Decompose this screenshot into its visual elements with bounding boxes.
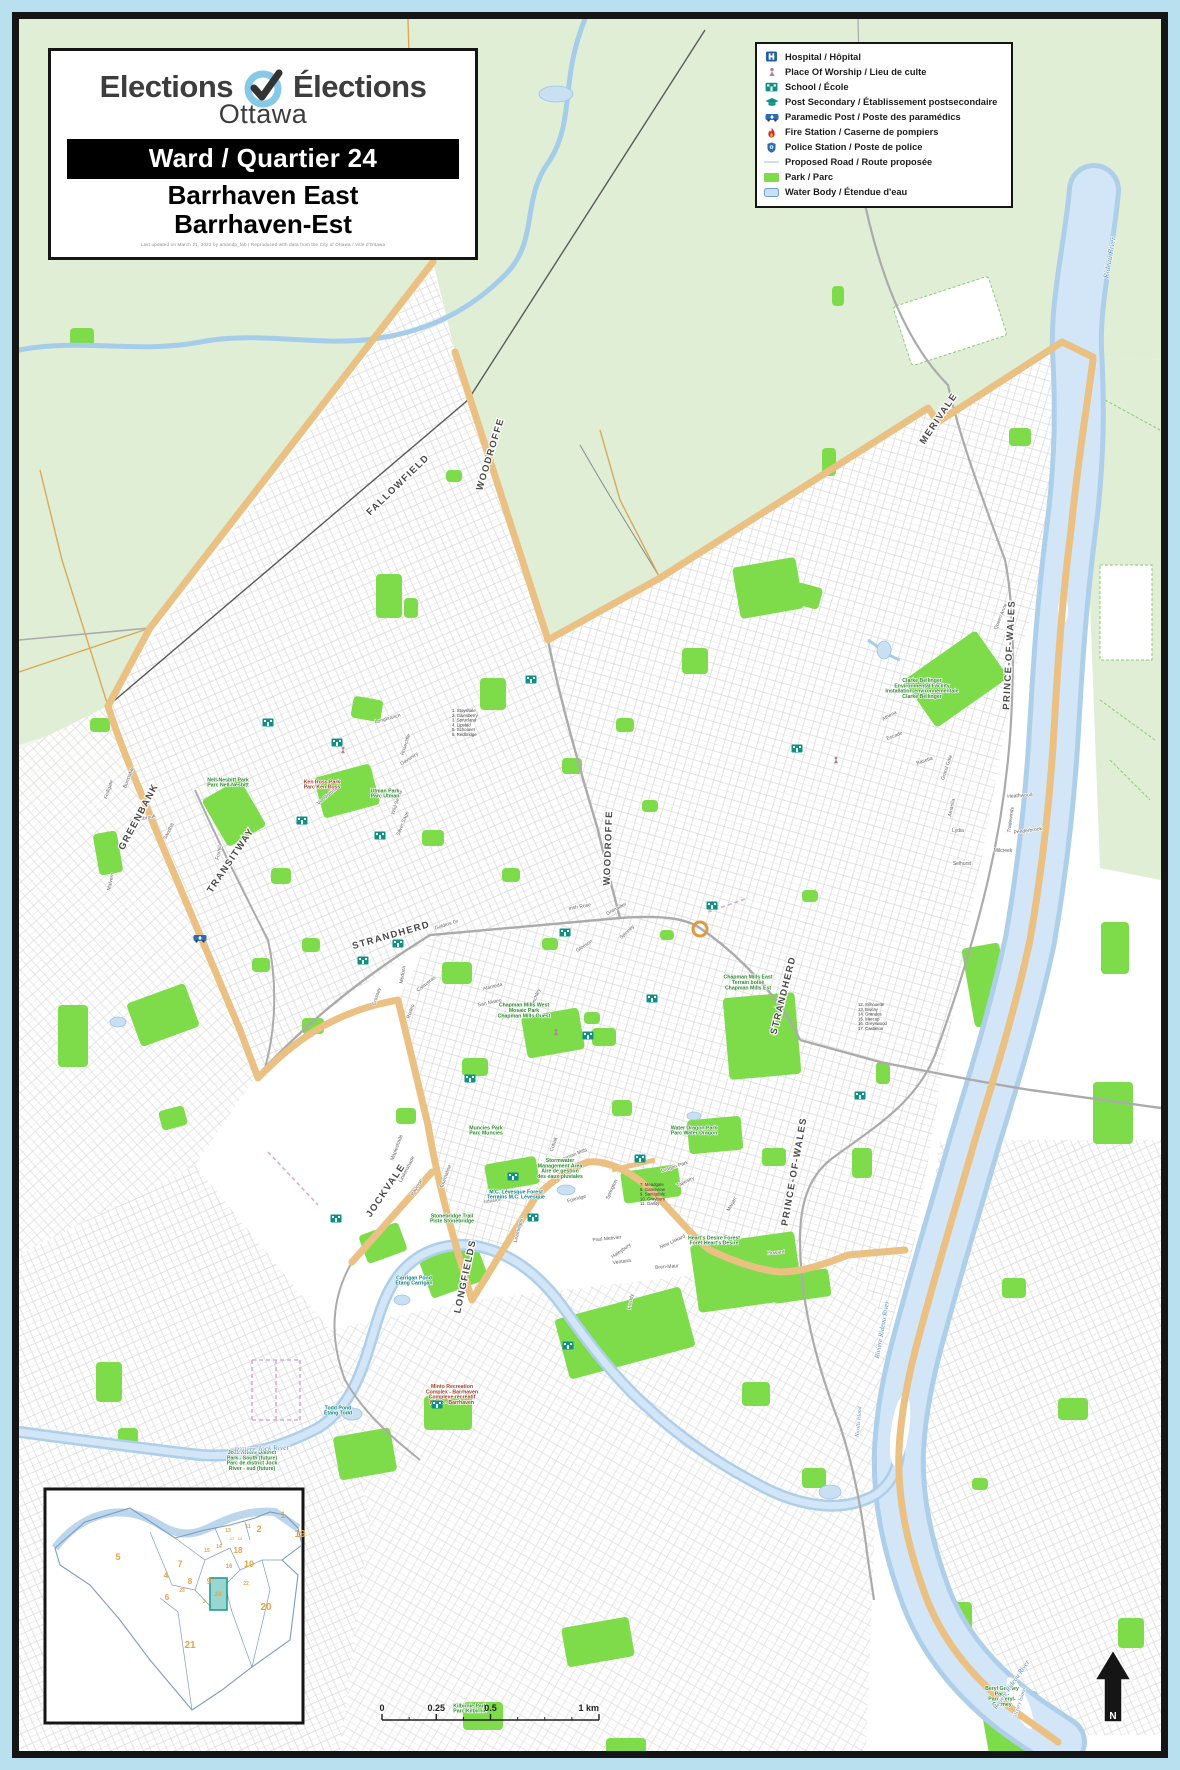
paramedic-icon xyxy=(764,111,779,123)
park-area xyxy=(802,1468,826,1488)
inset-ward-number: 20 xyxy=(260,1602,272,1613)
park-label: Carrigan PondÉtang Carrigan xyxy=(395,1275,432,1286)
park-label: Ken Ross ParkParc Ken Ross xyxy=(304,779,341,790)
school-icon xyxy=(375,832,386,840)
worship-icon xyxy=(764,66,779,78)
park-area xyxy=(876,1062,890,1084)
legend-item-label: Fire Station / Caserne de pompiers xyxy=(785,127,938,137)
inset-ward-number: 11 xyxy=(245,1524,251,1530)
map-attribution: Last updated on March 21, 2022 by amandp… xyxy=(51,242,475,247)
park-area xyxy=(252,958,270,972)
water-icon xyxy=(764,186,779,198)
inset-ward-number: 13 xyxy=(225,1528,231,1534)
scale-bar-label: 1 km xyxy=(578,1703,599,1713)
school-icon xyxy=(647,995,658,1003)
inset-ward-number: 10 xyxy=(244,1559,254,1569)
park-area xyxy=(660,930,674,940)
pond xyxy=(687,1112,701,1120)
scale-bar-label: 0 xyxy=(379,1703,384,1713)
legend-item-label: Paramedic Post / Poste des paramédics xyxy=(785,112,961,122)
police-icon xyxy=(764,141,779,153)
park-area xyxy=(802,890,818,902)
inset-map: 574896231016182119202122241514131112317 xyxy=(45,1489,306,1723)
park-label: Todd PondÉtang Todd xyxy=(324,1405,352,1416)
logo-word-fr: Élections xyxy=(293,69,426,105)
inset-ward-number: 22 xyxy=(243,1581,249,1587)
inset-ward-number: 24 xyxy=(215,1592,222,1598)
park-label: Water Dragon ParkParc Water Dragon xyxy=(671,1125,718,1136)
legend-item: Post Secondary / Établissement postsecon… xyxy=(764,94,1004,109)
park-area xyxy=(58,1005,88,1067)
school-icon xyxy=(263,719,274,727)
proposed-road-icon xyxy=(764,156,779,168)
school-icon xyxy=(297,817,308,825)
park-area xyxy=(396,1108,416,1124)
legend-item: Park / Parc xyxy=(764,170,1004,185)
inset-ward-number: 9 xyxy=(207,1577,212,1586)
map-page: Golders GrCalaverasAlamedaSan MateoFinch… xyxy=(0,0,1180,1770)
school-icon xyxy=(635,1155,646,1163)
legend-item: Proposed Road / Route proposée xyxy=(764,155,1004,170)
park-area xyxy=(462,1058,488,1076)
postsecondary-icon xyxy=(764,96,779,108)
school-icon xyxy=(560,929,571,937)
scale-bar-label: 0.25 xyxy=(427,1703,445,1713)
inset-ward-number: 23 xyxy=(179,1588,185,1594)
school-icon xyxy=(707,902,718,910)
school-icon xyxy=(332,739,343,747)
pond xyxy=(877,641,891,659)
legend-item-label: Proposed Road / Route proposée xyxy=(785,157,932,167)
school-icon xyxy=(331,1215,342,1223)
park-area xyxy=(422,830,444,846)
legend-item: Police Station / Poste de police xyxy=(764,140,1004,155)
school-icon xyxy=(526,676,537,684)
legend-item-label: Post Secondary / Établissement postsecon… xyxy=(785,97,997,107)
school-icon xyxy=(764,81,779,93)
pond xyxy=(539,86,573,102)
school-icon xyxy=(855,1092,866,1100)
school-icon xyxy=(528,1214,539,1222)
school-icon xyxy=(508,1173,519,1181)
scale-bar-label: 0.5 xyxy=(484,1703,497,1713)
school-icon xyxy=(583,1032,594,1040)
hospital-icon xyxy=(764,51,779,63)
street-label: Lydia xyxy=(952,828,964,834)
inset-ward-number: 6 xyxy=(165,1593,170,1602)
park-area xyxy=(732,557,804,619)
inset-ward-number: 5 xyxy=(115,1552,120,1562)
legend-item-label: Water Body / Étendue d'eau xyxy=(785,187,907,197)
park-area xyxy=(1101,922,1129,974)
inset-ward-number: 17 xyxy=(230,1536,235,1541)
inset-ward-number: 15 xyxy=(204,1548,210,1554)
park-area xyxy=(642,800,658,812)
park-area xyxy=(592,1028,616,1046)
school-icon xyxy=(563,1342,574,1350)
park-area xyxy=(376,574,402,618)
park-area xyxy=(542,938,558,950)
school-icon xyxy=(432,1401,443,1409)
park-label: Heart's Desire ForestForêt Heart's Desir… xyxy=(688,1235,740,1246)
legend: Hospital / HôpitalPlace Of Worship / Lie… xyxy=(755,42,1013,208)
logo-word-en: Elections xyxy=(100,69,233,105)
street-label: Selhurst xyxy=(953,861,972,867)
street-index-list: 1. Stoyshale2. Gainsberry3. Sprucland4. … xyxy=(452,708,479,737)
pond xyxy=(557,1185,575,1195)
park-area xyxy=(832,286,844,306)
park-area xyxy=(404,598,418,618)
inset-ward-number: 3 xyxy=(203,1599,206,1605)
inset-ward-number: 2 xyxy=(256,1524,261,1534)
title-box: Elections Élections Ottawa Ward / Quarti… xyxy=(48,48,478,260)
inset-ward-number: 7 xyxy=(177,1559,182,1569)
legend-item: Fire Station / Caserne de pompiers xyxy=(764,124,1004,139)
pond xyxy=(819,1485,841,1499)
park-area xyxy=(723,992,802,1080)
park-area xyxy=(442,962,472,984)
park-area xyxy=(96,1362,122,1402)
park-area xyxy=(584,1012,600,1024)
school-icon xyxy=(465,1075,476,1083)
north-arrow-label: N xyxy=(1109,1711,1116,1722)
park-area xyxy=(612,1100,632,1116)
park-label: Muncies ParkParc Muncies xyxy=(469,1125,503,1136)
ward-name-en: Barrhaven East xyxy=(51,181,475,210)
park-area xyxy=(972,1478,988,1490)
park-label: Stonebridge TrailPiste Stonebridge xyxy=(430,1213,474,1224)
ward-banner: Ward / Quartier 24 xyxy=(67,139,459,179)
legend-item-label: Hospital / Hôpital xyxy=(785,52,861,62)
legend-item-label: Park / Parc xyxy=(785,172,833,182)
legend-item: Water Body / Étendue d'eau xyxy=(764,185,1004,200)
school-icon xyxy=(792,745,803,753)
inset-ward-number: 18 xyxy=(234,1546,243,1555)
park-area xyxy=(1058,1398,1088,1420)
park-area xyxy=(271,868,291,884)
park-icon xyxy=(764,171,779,183)
park-area xyxy=(502,868,520,882)
park-area xyxy=(446,470,462,482)
street-label: Milcreek xyxy=(994,848,1013,854)
inset-ward-number: 1 xyxy=(280,1510,285,1520)
legend-item: School / École xyxy=(764,79,1004,94)
inset-ward-number: 21 xyxy=(184,1640,196,1651)
pond xyxy=(394,1295,410,1305)
legend-item-label: Place Of Worship / Lieu de culte xyxy=(785,67,926,77)
park-area xyxy=(682,648,708,674)
inset-ward-number: 16 xyxy=(226,1564,233,1570)
park-area xyxy=(1118,1618,1144,1648)
pond xyxy=(110,1017,126,1027)
park-label: Utman ParkParc Utman xyxy=(371,788,400,799)
inset-ward-number: 14 xyxy=(216,1544,222,1550)
park-area xyxy=(1002,1278,1026,1298)
inset-ward-number: 4 xyxy=(164,1571,169,1580)
park-area xyxy=(90,718,110,732)
ward-map: Golders GrCalaverasAlamedaSan MateoFinch… xyxy=(0,0,1180,1770)
fire-icon xyxy=(764,126,779,138)
inset-ward-number: 12 xyxy=(238,1536,243,1541)
ward-name-fr: Barrhaven-Est xyxy=(51,210,475,239)
park-area xyxy=(852,1148,872,1178)
park-label: M.C. Lévesque ForestTerrains M.C. Lévesq… xyxy=(487,1189,545,1200)
inset-ward-number: 19 xyxy=(294,1529,306,1540)
inset-ward-number: 8 xyxy=(188,1577,193,1586)
legend-item-label: School / École xyxy=(785,82,849,92)
park-area xyxy=(1009,428,1031,446)
park-area xyxy=(1093,1082,1133,1144)
legend-item: Place Of Worship / Lieu de culte xyxy=(764,64,1004,79)
school-icon xyxy=(393,940,404,948)
park-area xyxy=(616,718,634,732)
park-area xyxy=(762,1148,786,1166)
park-label: Nell-Nesbitt ParkParc Nell-Nesbitt xyxy=(207,777,249,788)
park-area xyxy=(480,678,506,710)
park-label: Kilbirnie ParkParc Kilbirnie xyxy=(453,1703,487,1714)
legend-item: Paramedic Post / Poste des paramédics xyxy=(764,109,1004,124)
legend-item-label: Police Station / Poste de police xyxy=(785,142,922,152)
park-area xyxy=(302,938,320,952)
park-area xyxy=(742,1382,770,1406)
legend-item: Hospital / Hôpital xyxy=(764,49,1004,64)
school-icon xyxy=(358,957,369,965)
